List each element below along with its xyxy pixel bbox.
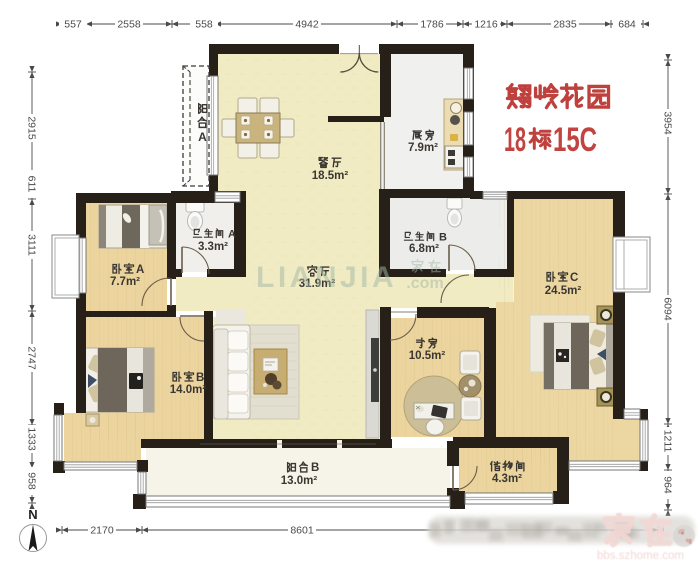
svg-text:18: 18 — [504, 121, 526, 159]
svg-text:558: 558 — [195, 19, 213, 31]
svg-text:6.8m²: 6.8m² — [409, 243, 439, 255]
svg-text:7.9m²: 7.9m² — [408, 142, 438, 154]
svg-text:3954: 3954 — [662, 111, 674, 135]
svg-text:611: 611 — [26, 176, 38, 193]
svg-text:4942: 4942 — [295, 19, 319, 31]
svg-text:1786: 1786 — [420, 19, 444, 31]
svg-text:N: N — [28, 507, 37, 522]
svg-text:1216: 1216 — [474, 19, 498, 31]
svg-text:10.5m²: 10.5m² — [409, 350, 446, 362]
svg-text:LIANJIA: LIANJIA — [256, 261, 397, 294]
svg-text:A: A — [228, 229, 236, 241]
svg-text:3.3m²: 3.3m² — [198, 241, 228, 253]
svg-text:1333: 1333 — [26, 427, 38, 451]
svg-text:A: A — [136, 264, 144, 276]
svg-text:B: B — [311, 462, 319, 474]
svg-text:.com: .com — [406, 275, 443, 292]
svg-text:684: 684 — [618, 19, 636, 31]
svg-text:2835: 2835 — [553, 19, 577, 31]
svg-text:18.5m²: 18.5m² — [312, 170, 349, 182]
svg-text:B: B — [196, 372, 204, 384]
svg-text:7.7m²: 7.7m² — [110, 276, 140, 288]
svg-text:2170: 2170 — [90, 525, 114, 537]
svg-text:4.3m²: 4.3m² — [492, 473, 522, 485]
svg-text:1211: 1211 — [662, 430, 674, 453]
svg-text:8601: 8601 — [290, 525, 314, 537]
svg-text:964: 964 — [662, 476, 674, 494]
svg-text:B: B — [439, 232, 447, 244]
svg-text:15C: 15C — [553, 121, 597, 159]
svg-text:557: 557 — [64, 19, 82, 31]
svg-text:13.0m²: 13.0m² — [281, 475, 318, 487]
svg-text:2915: 2915 — [26, 116, 38, 140]
svg-text:bbs.szhome.com: bbs.szhome.com — [597, 550, 684, 562]
svg-text:2747: 2747 — [26, 346, 38, 370]
svg-text:14.0m²: 14.0m² — [170, 384, 207, 396]
svg-text:A: A — [198, 130, 207, 144]
svg-text:24.5m²: 24.5m² — [545, 285, 582, 297]
svg-text:C: C — [570, 272, 578, 284]
svg-text:958: 958 — [26, 472, 38, 490]
svg-text:3111: 3111 — [26, 234, 38, 256]
svg-text:6094: 6094 — [662, 297, 674, 321]
svg-text:2558: 2558 — [117, 19, 141, 31]
